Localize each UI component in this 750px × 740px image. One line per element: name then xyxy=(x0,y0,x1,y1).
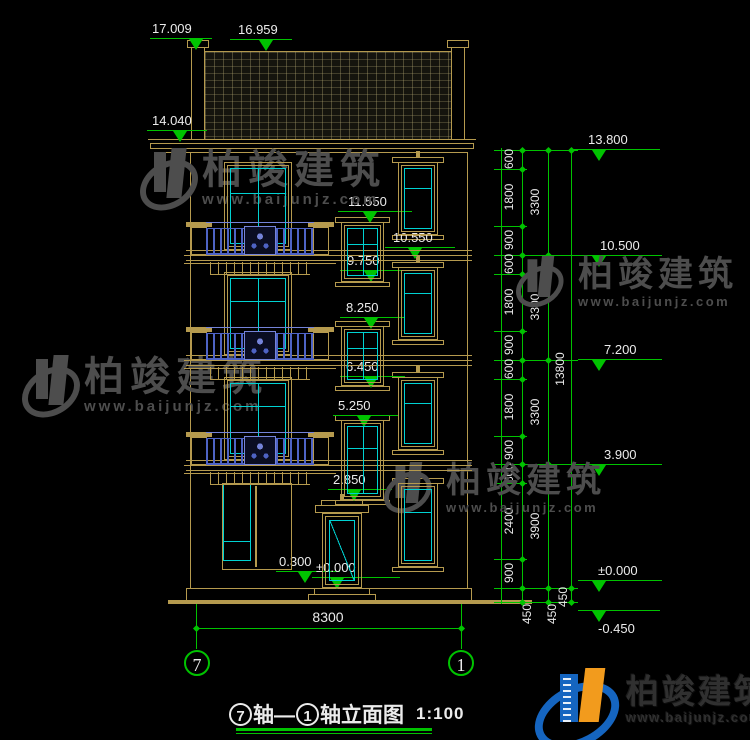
dimension-tick xyxy=(519,223,526,230)
entrance-door xyxy=(322,513,362,588)
window-right-floor2 xyxy=(398,377,438,450)
window-transom xyxy=(405,188,431,189)
door-step-2 xyxy=(308,594,376,602)
window-glass xyxy=(347,426,378,494)
window-mullion xyxy=(363,333,364,379)
railing-ornament-panel xyxy=(244,331,276,360)
title-underline-thin xyxy=(236,733,432,734)
dimension-tick xyxy=(193,625,200,632)
elevation-marker-minus0450-label: -0.450 xyxy=(598,621,635,636)
window-transom xyxy=(405,512,431,513)
window-glass xyxy=(404,273,432,334)
window-right-floor4 xyxy=(398,162,438,235)
balcony-drip-ticks xyxy=(210,472,310,485)
stair-window-middle xyxy=(341,326,384,386)
window-right-floor3 xyxy=(398,267,438,340)
balcony-railing xyxy=(206,222,314,255)
balcony-railing xyxy=(206,327,314,360)
dimension-chain-label: 3300 xyxy=(528,189,542,216)
window-sill xyxy=(392,340,444,345)
window-sill xyxy=(392,450,444,455)
dimension-tick xyxy=(519,585,526,592)
stair-window-upper xyxy=(341,222,384,282)
balcony-floor4 xyxy=(184,222,336,274)
balcony-drip-ticks xyxy=(210,262,310,275)
dimension-chain-label: 900 xyxy=(502,230,516,250)
window-glass xyxy=(347,228,378,276)
elevation-marker-13800-label: 13.800 xyxy=(588,132,628,147)
dimension-chain-label: 3300 xyxy=(528,399,542,426)
title-name: 轴立面图 xyxy=(320,699,404,729)
window-ground-left xyxy=(222,483,292,570)
dimension-tick xyxy=(519,357,526,364)
window-glass xyxy=(347,332,378,380)
window-sill xyxy=(335,500,390,505)
roof-parapet-post-right xyxy=(451,47,465,140)
roof-parapet-post-left xyxy=(191,47,205,140)
watermark-logo-icon xyxy=(516,256,560,307)
dimension-tick xyxy=(519,328,526,335)
window-sill xyxy=(335,282,390,287)
dimension-tick xyxy=(545,147,552,154)
elevation-marker-16959-triangle xyxy=(259,40,273,51)
dimension-tick xyxy=(458,625,465,632)
window-glass xyxy=(404,383,432,444)
drawing-title: 7轴—1轴立面图1:100 xyxy=(228,699,464,729)
elevation-marker-3900-label: 3.900 xyxy=(604,447,637,462)
brand-url: www.baijunjz.com xyxy=(626,710,750,725)
roof-tile-hatch xyxy=(205,51,451,140)
window-mullion xyxy=(363,427,364,493)
elevation-marker-minus0450-line xyxy=(578,610,660,611)
dimension-line-8300 xyxy=(196,628,462,629)
dimension-chain-label: 13800 xyxy=(553,352,567,385)
dimension-chain-label: 900 xyxy=(502,563,516,583)
window-glass xyxy=(404,489,432,561)
dimension-chain-label: 1800 xyxy=(502,184,516,211)
axis-bubble-1: 1 xyxy=(448,650,474,676)
dimension-chain-label: 1800 xyxy=(502,394,516,421)
title-joiner: 轴— xyxy=(253,699,295,729)
railing-ornament-panel xyxy=(244,226,276,255)
elevation-marker-7200-line xyxy=(578,359,662,360)
watermark-url: www.baijunjz.com xyxy=(446,500,606,516)
elevation-marker-0300-triangle xyxy=(298,572,312,583)
watermark-logo-icon xyxy=(140,148,194,210)
elevation-marker-7200-triangle xyxy=(592,360,606,371)
brand-name: 柏竣建筑 xyxy=(626,674,750,710)
cad-elevation-drawing: 柏竣建筑 www.baijunjz.com 柏竣建筑 www.baijunjz.… xyxy=(0,0,750,740)
dimension-tick xyxy=(519,556,526,563)
elevation-marker-8250-label: 8.250 xyxy=(346,300,379,315)
elevation-marker-7200-label: 7.200 xyxy=(604,342,637,357)
dimension-chain-label: 450 xyxy=(520,604,534,624)
door-cap xyxy=(315,505,369,513)
elevation-marker-0000-right-line xyxy=(578,580,662,581)
stair-window-lower xyxy=(341,420,384,500)
window-right-ground xyxy=(398,483,438,567)
elevation-marker-16959-label: 16.959 xyxy=(238,22,278,37)
title-axis-from: 7 xyxy=(229,703,252,726)
dimension-tick xyxy=(519,166,526,173)
balcony-floor2 xyxy=(184,432,336,484)
dimension-chain-label: 600 xyxy=(502,254,516,274)
window-sill xyxy=(392,567,444,572)
window-transom xyxy=(405,293,431,294)
dimension-tick xyxy=(519,147,526,154)
dimension-tick xyxy=(545,585,552,592)
watermark-logo-icon xyxy=(22,355,76,417)
brand-logo-icon xyxy=(530,660,622,738)
title-axis-to: 1 xyxy=(296,703,319,726)
railing-ornament-panel xyxy=(244,436,276,465)
dimension-chain-label: 900 xyxy=(502,335,516,355)
balcony-floor3 xyxy=(184,327,336,379)
elevation-marker-5250-label: 5.250 xyxy=(338,398,371,413)
elevation-marker-14040-label: 14.040 xyxy=(152,113,192,128)
watermark-right: 柏竣建筑 www.baijunjz.com xyxy=(516,256,738,318)
elevation-marker-10500-label: 10.500 xyxy=(600,238,640,253)
window-sill xyxy=(335,386,390,391)
balcony-drip-ticks xyxy=(210,367,310,380)
dimension-label-8300: 8300 xyxy=(298,609,358,625)
window-mullion xyxy=(363,229,364,275)
title-scale: 1:100 xyxy=(416,704,464,724)
dimension-chain-label: 900 xyxy=(502,440,516,460)
dimension-chain-label: 600 xyxy=(502,149,516,169)
dimension-tick xyxy=(519,433,526,440)
elevation-marker-17009-triangle xyxy=(189,39,203,50)
elevation-marker-0000-right-triangle xyxy=(592,581,606,592)
elevation-marker-17009-label: 17.009 xyxy=(152,21,192,36)
axis-bubble-7: 7 xyxy=(184,650,210,676)
balcony-railing xyxy=(206,432,314,465)
elevation-marker-13800-triangle xyxy=(592,150,606,161)
dimension-chain-label: 600 xyxy=(502,359,516,379)
watermark-url: www.baijunjz.com xyxy=(578,294,738,310)
elevation-marker-0000-right-label: ±0.000 xyxy=(598,563,638,578)
dimension-chain-label: 1800 xyxy=(502,289,516,316)
window-glass xyxy=(404,168,432,229)
window-transom xyxy=(405,403,431,404)
dimension-chain-line xyxy=(571,148,572,604)
dimension-chain-label: 450 xyxy=(556,587,570,607)
watermark-brand: 柏竣建筑 xyxy=(578,256,738,294)
brand-logo: 柏竣建筑 www.baijunjz.com xyxy=(530,660,750,738)
dimension-tick xyxy=(545,357,552,364)
dimension-tick xyxy=(519,376,526,383)
eave-cornice-line xyxy=(148,139,476,140)
dimension-chain-line xyxy=(548,148,549,604)
elevation-marker-14040-triangle xyxy=(173,131,187,142)
elevation-marker-13800-line xyxy=(572,149,660,150)
